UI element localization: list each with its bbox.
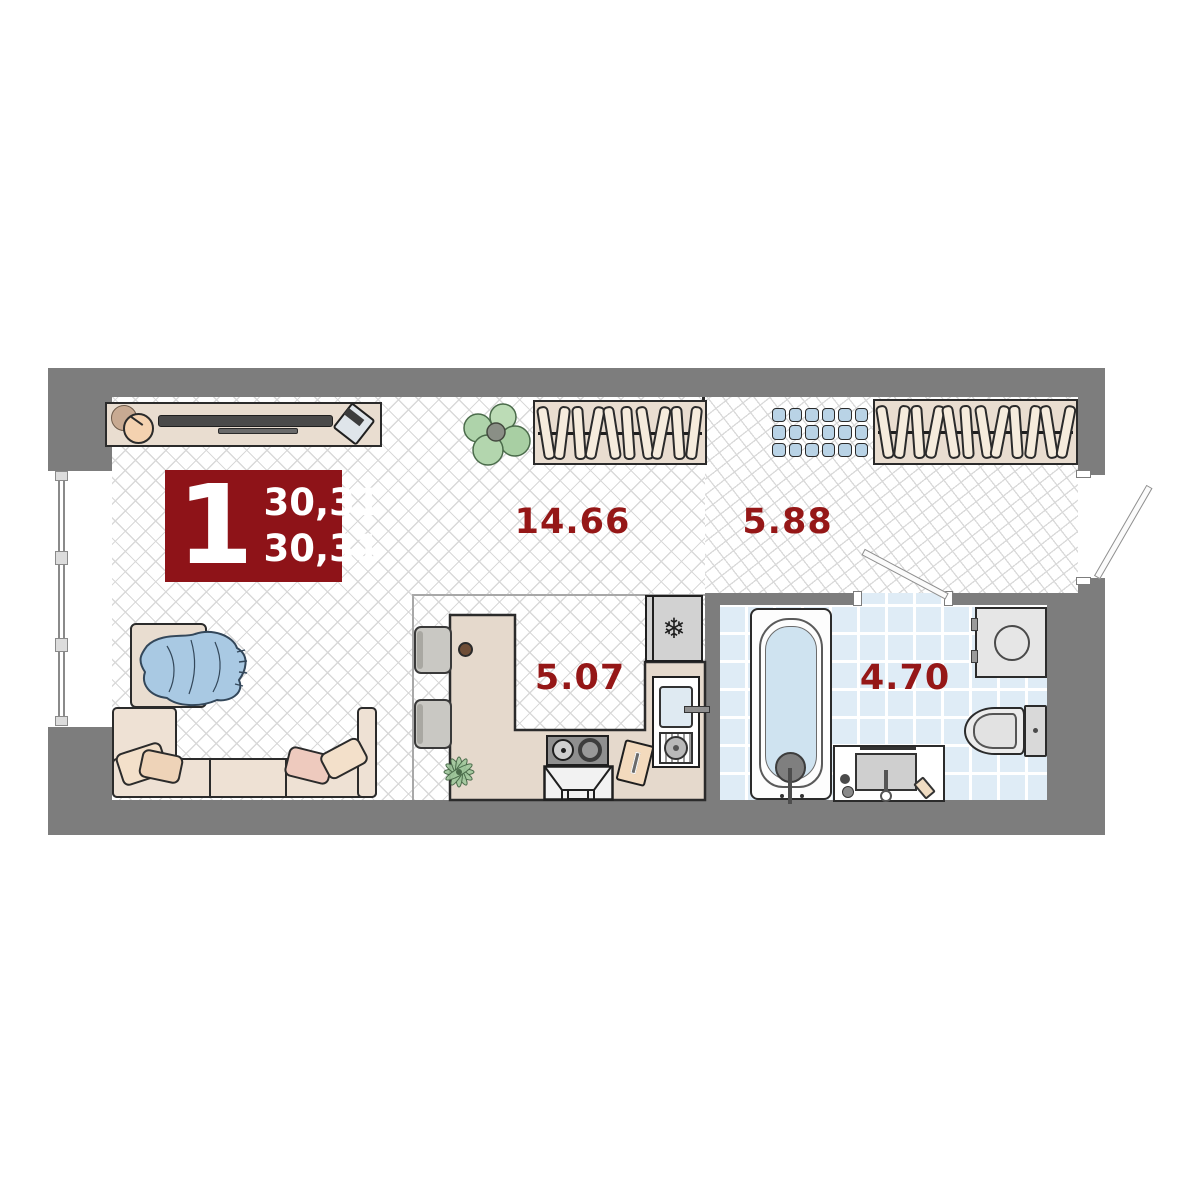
- bathtub-foot: [780, 794, 784, 798]
- hangers: [875, 401, 1076, 463]
- door-jamb: [1076, 577, 1091, 585]
- shoe-cell: [789, 425, 803, 439]
- washing-machine-door: [994, 625, 1030, 661]
- shoe-rack: [772, 408, 868, 457]
- entrance-door-leaf: [1094, 485, 1153, 579]
- shoe-cell: [805, 425, 819, 439]
- window-mullion: [55, 638, 68, 652]
- shoe-cell: [822, 443, 836, 457]
- sofa-seat-divider: [209, 760, 211, 796]
- shoe-cell: [822, 425, 836, 439]
- tv-stand: [218, 428, 298, 434]
- kitchen-faucet: [684, 706, 710, 713]
- wall-top: [48, 368, 1105, 397]
- shoe-cell: [772, 425, 786, 439]
- snowflake-icon: ❄: [662, 612, 685, 645]
- door-jamb: [853, 591, 862, 606]
- wardrobe-living: [533, 400, 707, 465]
- area-label-kitchen: 5.07: [515, 658, 645, 698]
- shoe-cell: [772, 408, 786, 422]
- wall-left-top: [48, 397, 112, 471]
- shoe-cell: [838, 408, 852, 422]
- wall-bottom: [48, 800, 1105, 835]
- stove-burner: [578, 738, 602, 762]
- apartment-badge: 1 30,31 30,31: [165, 470, 342, 582]
- window-mullion: [55, 551, 68, 565]
- hanger-icon: [553, 405, 571, 460]
- window-mullion: [55, 716, 68, 726]
- hanger-icon: [910, 405, 926, 460]
- badge-rooms-count: 1: [177, 479, 254, 573]
- blanket-icon: [133, 628, 258, 710]
- toilet-tank-button: [1033, 728, 1038, 733]
- bathtub-foot: [800, 794, 804, 798]
- hanger-icon: [685, 405, 703, 460]
- window-glass-line: [58, 473, 65, 725]
- plant-icon: [458, 400, 534, 470]
- range-hood: [543, 765, 614, 801]
- washer-knob: [971, 618, 978, 631]
- hanger-icon: [1054, 404, 1076, 459]
- floor-plan: 1 30,31 30,31: [0, 0, 1200, 1200]
- shoe-cell: [822, 408, 836, 422]
- shoe-cell: [855, 425, 869, 439]
- vanity-ledge: [860, 747, 916, 750]
- wall-right-top: [1078, 397, 1105, 475]
- badge-living-area: 30,31: [264, 526, 381, 572]
- wall-bathroom-top-right: [953, 593, 1078, 605]
- plant-small-icon: [440, 753, 478, 791]
- shoe-cell: [772, 443, 786, 457]
- soap-bottle: [842, 786, 854, 798]
- soap-bottle: [840, 774, 850, 784]
- shoe-cell: [805, 443, 819, 457]
- wardrobe-hallway: [873, 399, 1078, 465]
- wall-bathroom-right: [1047, 593, 1105, 800]
- hanger-icon: [620, 405, 636, 460]
- wall-bathroom-top-left: [705, 593, 855, 605]
- area-label-hallway: 5.88: [730, 502, 845, 542]
- badge-total-area: 30,31: [264, 480, 381, 526]
- area-label-bathroom: 4.70: [840, 658, 970, 698]
- shoe-cell: [805, 408, 819, 422]
- shoe-cell: [855, 408, 869, 422]
- bathtub-pipe: [788, 768, 792, 804]
- coffee-cup: [458, 642, 473, 657]
- hangers: [535, 402, 705, 463]
- fridge-door-line: [652, 597, 654, 660]
- hanger-icon: [602, 405, 622, 460]
- hanger-icon: [959, 405, 975, 460]
- kitchen-chair: [414, 699, 452, 749]
- kitchen-zone-line-left: [412, 594, 414, 800]
- tv: [158, 415, 333, 427]
- dish-rack-dot: [673, 745, 679, 751]
- hanger-icon: [1009, 405, 1025, 460]
- window-mullion: [55, 471, 68, 481]
- hanger-icon: [650, 405, 672, 460]
- shoe-cell: [789, 408, 803, 422]
- stove-burner-dot: [561, 748, 566, 753]
- shoe-cell: [855, 443, 869, 457]
- shoe-cell: [838, 443, 852, 457]
- hanger-icon: [670, 405, 686, 460]
- shoe-cell: [789, 443, 803, 457]
- hanger-icon: [941, 404, 961, 459]
- kitchen-chair: [414, 626, 452, 674]
- area-label-living: 14.66: [505, 502, 640, 542]
- shoe-cell: [838, 425, 852, 439]
- vanity-faucet-ring: [880, 790, 892, 802]
- hanger-icon: [893, 404, 911, 459]
- door-jamb: [1076, 470, 1091, 478]
- side-table-clock: [123, 413, 154, 444]
- toilet-seat: [973, 713, 1017, 749]
- washer-knob: [971, 650, 978, 663]
